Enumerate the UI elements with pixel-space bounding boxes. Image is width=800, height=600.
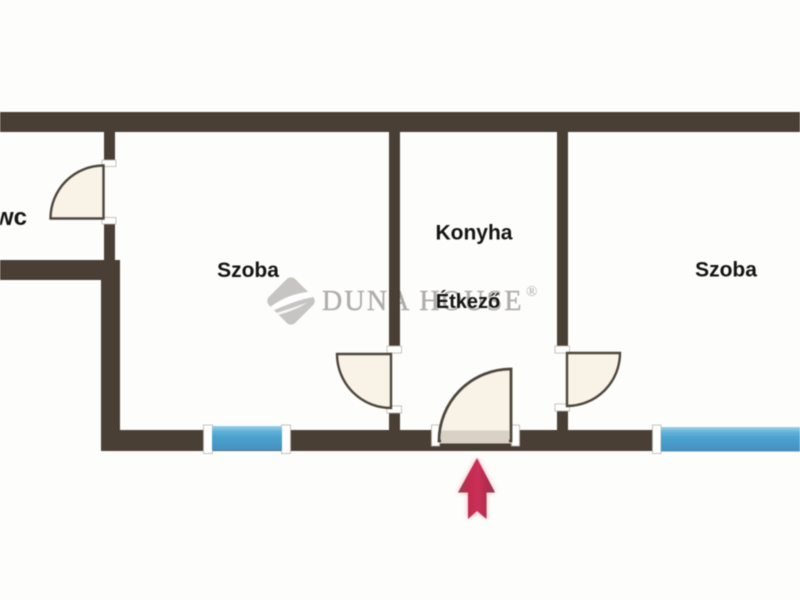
svg-text:®: ®	[526, 284, 537, 300]
svg-text:Szoba: Szoba	[217, 259, 279, 282]
svg-text:wc: wc	[0, 204, 27, 231]
svg-text:Szoba: Szoba	[695, 259, 757, 282]
svg-text:Étkező: Étkező	[436, 290, 500, 313]
svg-text:Konyha: Konyha	[435, 222, 512, 245]
